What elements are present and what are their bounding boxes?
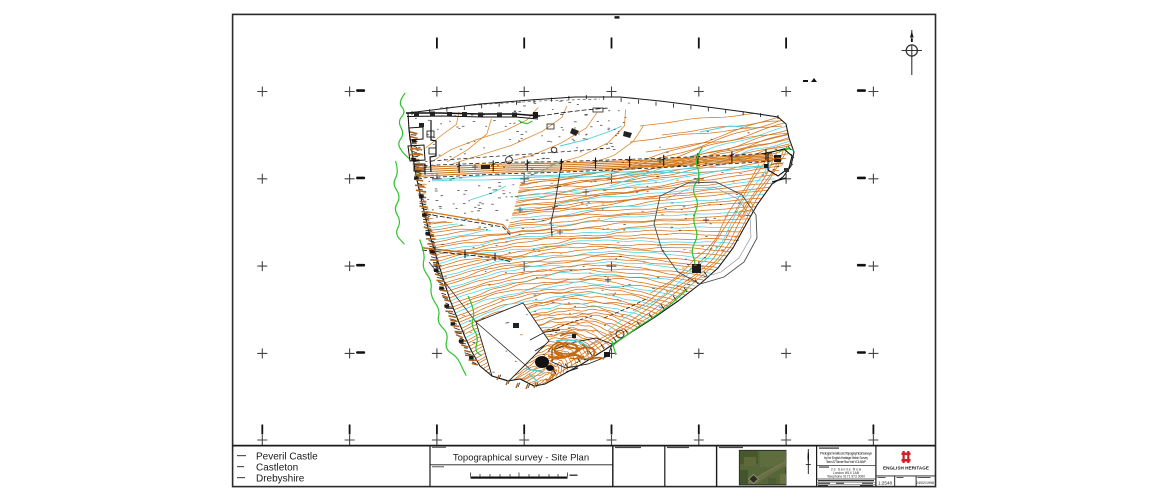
svg-text:Team 37 Tanner Row York YO1 6W: Team 37 Tanner Row York YO1 6WP <box>826 460 866 464</box>
svg-text:Peveril Castle: Peveril Castle <box>256 452 318 463</box>
svg-text:Topographical survey - Site Pl: Topographical survey - Site Plan <box>453 453 589 464</box>
svg-text:ENGLISH HERITAGE: ENGLISH HERITAGE <box>883 466 929 471</box>
svg-text:24/02/1998: 24/02/1998 <box>916 481 934 485</box>
svg-text:Photogrammetric and Topographi: Photogrammetric and Topographical Survey… <box>820 452 872 456</box>
svg-text:Telephone 0171 973 3000: Telephone 0171 973 3000 <box>827 475 865 479</box>
svg-text:Castleton: Castleton <box>256 463 298 474</box>
svg-text:1:2548: 1:2548 <box>878 481 892 486</box>
svg-text:Drebyshire: Drebyshire <box>256 474 305 485</box>
